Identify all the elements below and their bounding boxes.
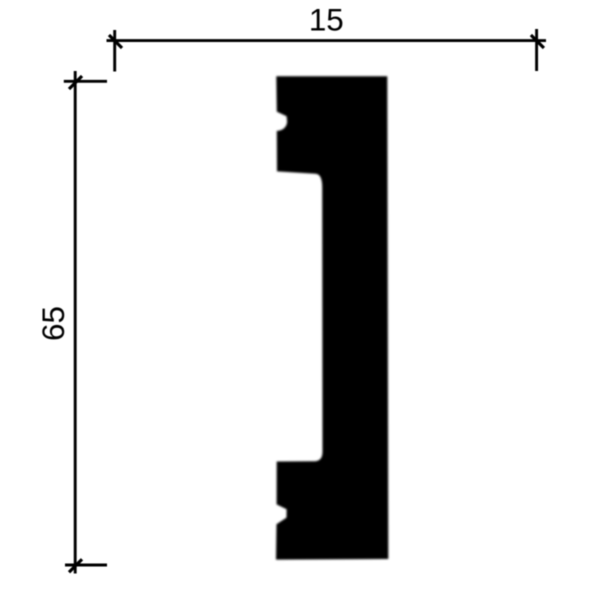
svg-text:15: 15 <box>309 3 344 38</box>
svg-text:65: 65 <box>36 306 71 341</box>
